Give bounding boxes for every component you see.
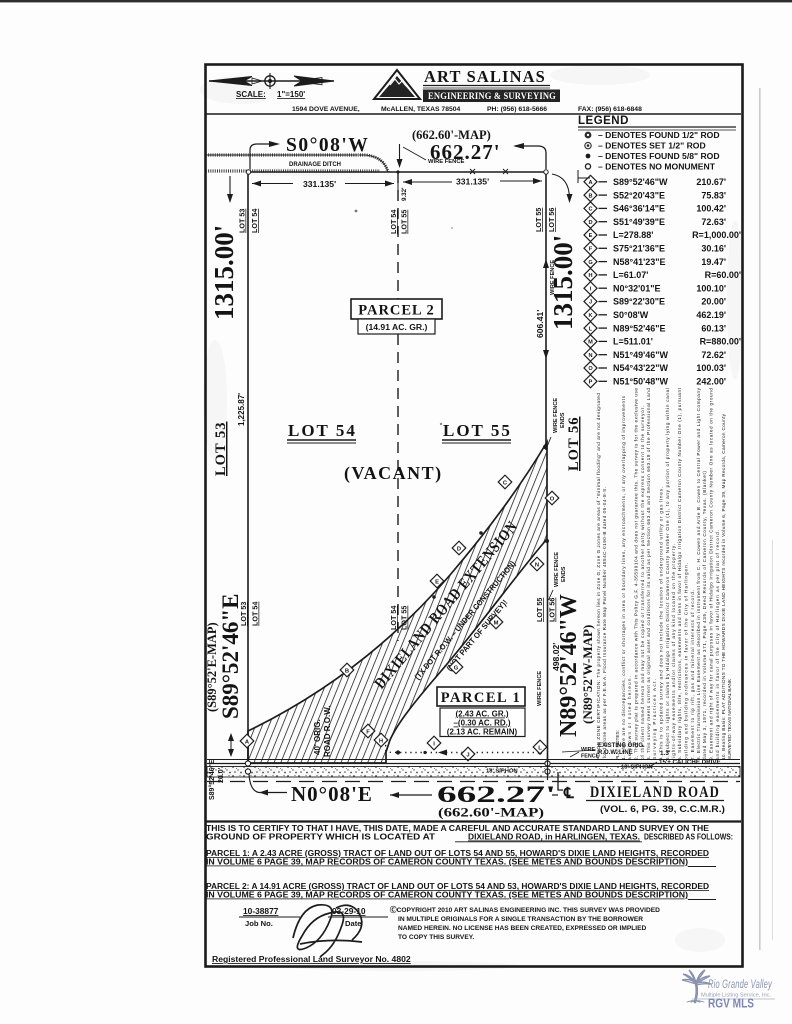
svg-text:dated May 3, 1971, recorded in: dated May 3, 1971, recorded in Volume 37… — [702, 471, 707, 760]
svg-text:(VACANT): (VACANT) — [344, 463, 443, 484]
svg-text:N0°08'E: N0°08'E — [291, 782, 373, 806]
svg-text:LOT 54: LOT 54 — [251, 602, 260, 626]
svg-text:B: B — [345, 668, 349, 674]
svg-text:NAMED HEREIN. NO LICENSE HAS: NAMED HEREIN. NO LICENSE HAS BEEN CREATE… — [398, 925, 647, 932]
svg-text:ⒸCOPYRIGHT 2010 ART SALINAS EN: ⒸCOPYRIGHT 2010 ART SALINAS ENGINEERING … — [390, 905, 660, 914]
svg-text:N: N — [535, 562, 539, 568]
svg-text:R=60.00': R=60.00' — [705, 270, 741, 280]
svg-text:N51°49'46"W: N51°49'46"W — [613, 350, 669, 360]
svg-text:SCALE:: SCALE: — [236, 90, 266, 99]
svg-text:LOT 56: LOT 56 — [566, 417, 582, 471]
svg-text:4. This is to updated survey: 4. This is to updated survey and does no… — [659, 487, 664, 760]
svg-text:A: A — [588, 180, 592, 186]
svg-text:DIXIELAND ROAD: DIXIELAND ROAD — [590, 784, 720, 801]
svg-text:DRAINAGE DITCH: DRAINAGE DITCH — [289, 162, 341, 168]
svg-text:flood prone areas as per F.E.M: flood prone areas as per F.E.M.A. Flood … — [602, 487, 607, 760]
svg-text:WIRE FENCE: WIRE FENCE — [537, 671, 543, 706]
svg-text:IN VOLUME 6 PAGE 39, MAP RECOR: IN VOLUME 6 PAGE 39, MAP RECORDS OF CAME… — [206, 891, 688, 900]
svg-text:J: J — [589, 300, 592, 306]
svg-text:S89°52'46"E: S89°52'46"E — [218, 594, 243, 720]
svg-text:LEGEND: LEGEND — [578, 115, 629, 127]
svg-text:LOT 54: LOT 54 — [389, 606, 398, 630]
svg-text:McALLEN, TEXAS 78504: McALLEN, TEXAS 78504 — [381, 106, 461, 113]
svg-text:L: L — [589, 326, 593, 332]
svg-text:LOT 54: LOT 54 — [389, 210, 398, 234]
svg-text:LOT 55: LOT 55 — [400, 210, 409, 234]
svg-text:1,225.87': 1,225.87' — [237, 393, 246, 426]
svg-text:WIRE: WIRE — [581, 747, 595, 753]
svg-text:D: D — [457, 546, 461, 552]
svg-text:FLOOD ZONE CERTIFICATION: The: FLOOD ZONE CERTIFICATION: The property s… — [596, 393, 601, 760]
svg-text:B: B — [588, 193, 592, 199]
svg-text:(2.43 AC. GR.): (2.43 AC. GR.) — [455, 710, 508, 719]
svg-text:1. There are no discrepancie: 1. There are no discrepancies, conflict … — [621, 395, 626, 760]
svg-text:H: H — [588, 273, 592, 279]
svg-text:40' ORIG.: 40' ORIG. — [313, 719, 322, 755]
svg-text:E: E — [589, 233, 593, 239]
svg-text:– DENOTES FOUND 5/8" ROD: – DENOTES FOUND 5/8" ROD — [598, 151, 720, 161]
svg-text:LOT 53: LOT 53 — [213, 422, 229, 476]
svg-text:30.16': 30.16' — [701, 244, 726, 254]
svg-text:72.63': 72.63' — [701, 217, 726, 227]
svg-text:2. This survey plat is prepa: 2. This survey plat is prepared in accor… — [634, 388, 639, 760]
svg-text:6. Subsidiary rights, title,: 6. Subsidiary rights, title, restriction… — [677, 387, 682, 760]
svg-text:O: O — [550, 496, 555, 502]
svg-text:F: F — [366, 729, 370, 735]
svg-text:RGV MLS: RGV MLS — [708, 997, 754, 1011]
svg-text:SURVEYED: TEXAS NATIONAL BANK: SURVEYED: TEXAS NATIONAL BANK — [727, 678, 732, 760]
svg-text:(2.13 AC. REMAIN): (2.13 AC. REMAIN) — [447, 728, 518, 737]
svg-text:100.42': 100.42' — [696, 204, 726, 214]
svg-text:of the client named hereon and: of the client named hereon and may not b… — [640, 406, 645, 760]
svg-text:K: K — [588, 313, 592, 319]
svg-text:1315.00': 1315.00' — [209, 225, 239, 320]
svg-text:Job No.: Job No. — [245, 919, 273, 928]
svg-text:PLAT NOTES:: PLAT NOTES: — [615, 730, 620, 760]
svg-text:N54°43'22"W: N54°43'22"W — [613, 363, 669, 373]
svg-text:– DENOTES FOUND 1/2" ROD: – DENOTES FOUND 1/2" ROD — [598, 130, 720, 140]
svg-text:– DENOTES NO MONUMENT: – DENOTES NO MONUMENT — [598, 161, 716, 171]
svg-text:L: L — [538, 745, 542, 751]
svg-text:E: E — [435, 579, 439, 585]
svg-text:GROUND OF PROPERTY WHICH IS LO: GROUND OF PROPERTY WHICH IS LOCATED AT — [206, 833, 435, 842]
svg-text:462.19': 462.19' — [696, 310, 726, 320]
svg-text:LOT 55: LOT 55 — [535, 598, 544, 622]
svg-text:3. This survey meets current: 3. This survey meets current as original… — [646, 388, 651, 760]
svg-text:–(0.30 AC. RD.): –(0.30 AC. RD.) — [453, 719, 510, 728]
svg-text:WIRE FENCE: WIRE FENCE — [553, 398, 559, 433]
svg-text:– DENOTES SET 1/2" ROD: – DENOTES SET 1/2" ROD — [598, 141, 706, 151]
svg-text:9. Easement and right of way: 9. Easement and right of way for canal p… — [709, 388, 714, 760]
svg-text:LOT 55: LOT 55 — [534, 208, 543, 232]
svg-text:S89°52'46"E: S89°52'46"E — [208, 759, 216, 800]
svg-text:242.00': 242.00' — [696, 377, 726, 387]
svg-text:M: M — [494, 620, 499, 626]
svg-text:and building easements in favo: and building easements in favor of the C… — [715, 530, 720, 760]
svg-text:FAX: (956) 618-6848: FAX: (956) 618-6848 — [578, 106, 642, 113]
svg-text:662.27': 662.27' — [437, 782, 556, 808]
svg-text:S0°08'W: S0°08'W — [286, 135, 369, 156]
svg-text:S46°36'14"E: S46°36'14"E — [613, 204, 665, 214]
svg-text:Date: Date — [345, 919, 361, 928]
svg-text:606.41': 606.41' — [535, 310, 545, 338]
svg-text:60.13': 60.13' — [701, 323, 726, 333]
svg-text:N89°52'46"E: N89°52'46"E — [613, 323, 666, 333]
svg-text:S89°22'30"E: S89°22'30"E — [613, 297, 665, 307]
svg-text:WIRE FENCE: WIRE FENCE — [550, 260, 556, 295]
svg-text:R=1,000.00': R=1,000.00' — [692, 230, 741, 240]
svg-text:PH: (956) 618-5666: PH: (956) 618-5666 — [487, 106, 547, 113]
svg-text:D: D — [588, 220, 592, 226]
svg-text:N58°41'23"E: N58°41'23"E — [613, 257, 666, 267]
svg-text:L=511.01': L=511.01' — [613, 337, 653, 347]
svg-text:LOT 56: LOT 56 — [547, 208, 556, 232]
svg-text:S52°20'43"E: S52°20'43"E — [613, 190, 665, 200]
svg-text:L=278.88': L=278.88' — [613, 230, 653, 240]
svg-text:M: M — [588, 340, 593, 346]
svg-text:DESCRIBED AS FOLLOWS:: DESCRIBED AS FOLLOWS: — [644, 833, 733, 842]
svg-text:ART SALINAS: ART SALINAS — [424, 67, 546, 86]
svg-text:210.67': 210.67' — [696, 177, 726, 187]
svg-text:S0°08'W: S0°08'W — [613, 310, 649, 320]
svg-text:331.135': 331.135' — [303, 179, 336, 189]
svg-text:O: O — [588, 366, 593, 372]
svg-text:building and building ordinanc: building and building ordinances in favo… — [684, 563, 689, 760]
svg-text:18' SIPHON: 18' SIPHON — [486, 769, 518, 775]
svg-text:rights-of-way easements and/or: rights-of-way easements and/or claims of… — [671, 544, 676, 760]
svg-text:ENDS: ENDS — [561, 566, 567, 582]
svg-text:S75°21'36"E: S75°21'36"E — [613, 244, 665, 254]
svg-text:as shown or noted hereon.: as shown or noted hereon. — [627, 676, 632, 760]
svg-text:DIXIELAND ROAD, in HARLINGEN,: DIXIELAND ROAD, in HARLINGEN, TEXAS. — [468, 833, 640, 842]
svg-text:H: H — [379, 738, 383, 744]
svg-text:F: F — [589, 247, 593, 253]
svg-text:LOT 55: LOT 55 — [443, 421, 512, 440]
svg-text:N51°50'48"W: N51°50'48"W — [613, 377, 669, 387]
svg-text:100.10': 100.10' — [696, 283, 726, 293]
svg-text:G: G — [454, 665, 459, 671]
svg-text:IN MULTIPLE ORIGINALS FOR A SI: IN MULTIPLE ORIGINALS FOR A SINGLE TRANS… — [398, 916, 643, 923]
svg-text:WIRE FENCE: WIRE FENCE — [428, 159, 465, 165]
svg-text:20.00': 20.00' — [701, 297, 726, 307]
svg-text:10-38877: 10-38877 — [243, 906, 279, 916]
svg-text:L=61.07': L=61.07' — [613, 270, 648, 280]
svg-text:IN VOLUME 6 PAGE 39, MAP RECOR: IN VOLUME 6 PAGE 39, MAP RECORDS OF CAME… — [206, 858, 688, 867]
svg-text:N89°52'46"W: N89°52'46"W — [556, 594, 582, 737]
svg-text:WIRE FENCE: WIRE FENCE — [554, 552, 560, 587]
svg-text:S51°49'39"E: S51°49'39"E — [613, 217, 665, 227]
svg-text:C: C — [588, 207, 592, 213]
svg-text:1594 DOVE AVENUE,: 1594 DOVE AVENUE, — [292, 106, 360, 113]
svg-text:Rio Grande Valley: Rio Grande Valley — [708, 979, 773, 991]
svg-text:(VOL. 6, PG. 39, C.C.M.R.): (VOL. 6, PG. 39, C.C.M.R.) — [600, 804, 725, 814]
svg-text:S89°52'46"W: S89°52'46"W — [613, 177, 668, 187]
svg-text:10. Bearing Basis: PLAT ADDI: 10. Bearing Basis: PLAT ADDITIONS TO THE… — [721, 413, 726, 760]
svg-text:18' SIPHON: 18' SIPHON — [621, 765, 653, 771]
svg-text:LOT 54: LOT 54 — [250, 209, 259, 233]
svg-text:N: N — [588, 353, 592, 359]
svg-text:1"=150': 1"=150' — [277, 90, 305, 99]
svg-text:R=880.00': R=880.00' — [700, 337, 741, 347]
svg-text:7. Easement to rip rift, gas: 7. Easement to rip rift, gas and mineral… — [690, 590, 695, 760]
svg-text:ROAD R.O.W.: ROAD R.O.W. — [323, 705, 332, 757]
svg-text:TO COPY THIS SURVEY.: TO COPY THIS SURVEY. — [398, 934, 474, 941]
svg-text:G: G — [588, 260, 592, 266]
svg-text:Registered Professional Land S: Registered Professional Land Surveyor No… — [212, 954, 411, 964]
svg-text:LOT 54: LOT 54 — [288, 421, 357, 440]
svg-text:100.03': 100.03' — [696, 363, 726, 373]
svg-text:(662.60'-MAP): (662.60'-MAP) — [438, 806, 544, 820]
svg-text:℄: ℄ — [563, 786, 574, 802]
svg-text:PARCEL 2: PARCEL 2 — [358, 303, 435, 319]
svg-text:Surveying Practices Act.: Surveying Practices Act. — [652, 679, 657, 760]
svg-text:(14.91 AC. GR.): (14.91 AC. GR.) — [366, 322, 428, 332]
svg-text:PARCEL 1: PARCEL 1 — [441, 690, 522, 706]
svg-text:75.83': 75.83' — [701, 190, 726, 200]
svg-text:9.32': 9.32' — [401, 187, 408, 201]
svg-text:19.47': 19.47' — [701, 257, 726, 267]
svg-text:ENGINEERING & SURVEYING: ENGINEERING & SURVEYING — [428, 91, 556, 101]
svg-text:N0°32'01"E: N0°32'01"E — [613, 283, 661, 293]
svg-text:331.135': 331.135' — [456, 177, 489, 187]
svg-text:8. Electric Transmission Lin: 8. Electric Transmission Line Easement a… — [696, 387, 701, 760]
svg-text:J: J — [466, 752, 469, 758]
svg-text:20.0': 20.0' — [218, 767, 225, 783]
svg-text:P: P — [589, 380, 593, 386]
svg-text:(N89°52'W-MAP): (N89°52'W-MAP) — [580, 625, 595, 724]
svg-text:72.62': 72.62' — [701, 350, 726, 360]
svg-text:ENDS: ENDS — [560, 412, 566, 428]
svg-text:(S89°52'E-MAP): (S89°52'E-MAP) — [205, 622, 219, 712]
svg-text:5. Subject to rights or clai: 5. Subject to rights or claims by Hidalg… — [665, 388, 670, 760]
